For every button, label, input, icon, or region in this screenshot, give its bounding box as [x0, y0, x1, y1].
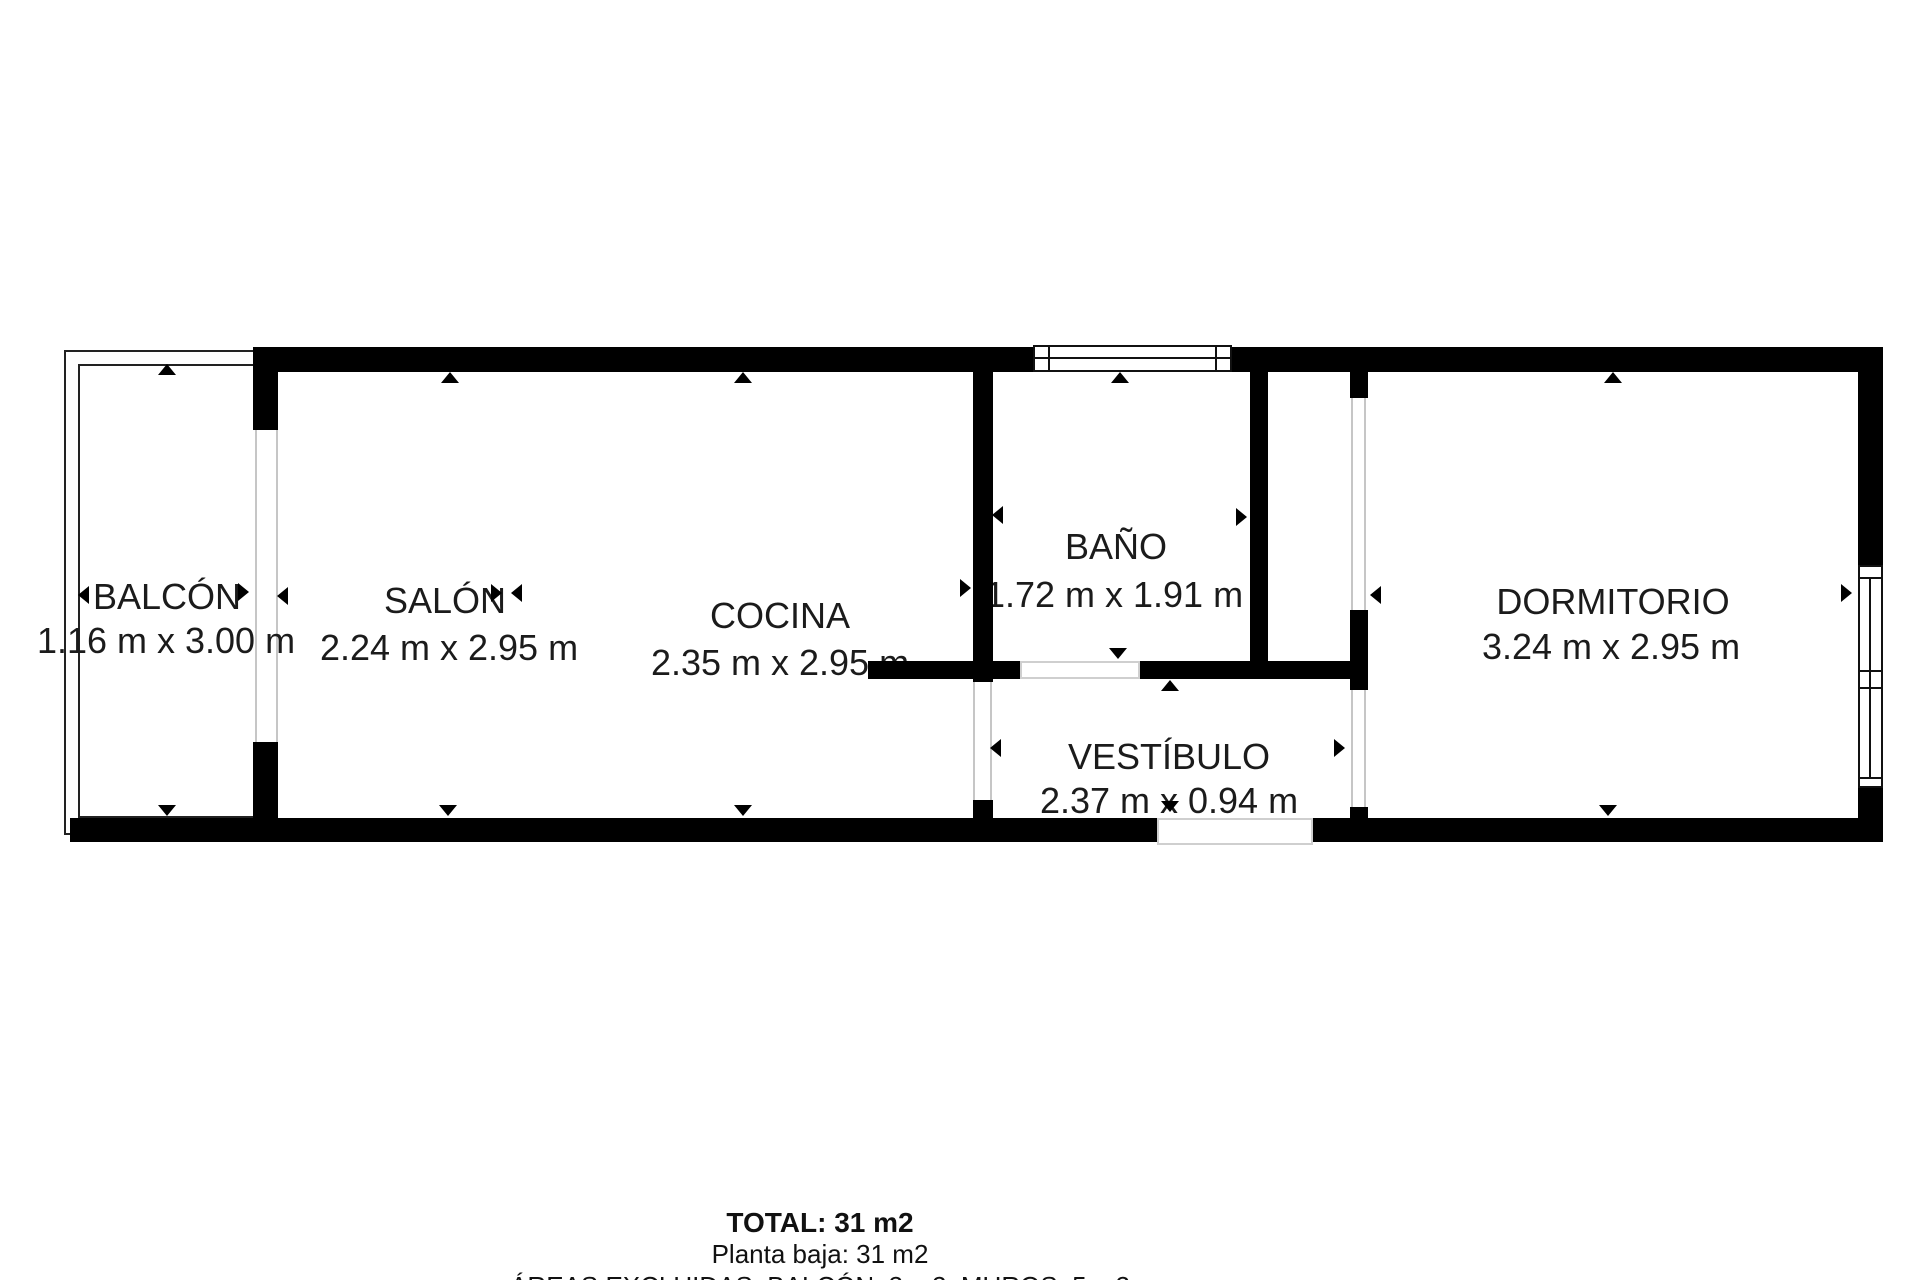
dim-arrow-left-icon: [277, 587, 288, 605]
wall-balcony-salon-bottom-stub: [253, 742, 278, 818]
wall-dormitorio-left-mid: [1350, 610, 1368, 690]
room-dimensions-cocina: 2.35 m x 2.95 m: [430, 639, 1130, 687]
wall-below-bano-right: [1140, 661, 1353, 679]
room-label-bano: BAÑO: [766, 523, 1466, 571]
dim-arrow-down-icon: [158, 805, 176, 816]
dim-arrow-left-icon: [1370, 586, 1381, 604]
dim-arrow-up-icon: [441, 372, 459, 383]
dormitorio-window-mullion: [1869, 577, 1871, 777]
summary-total: TOTAL: 31 m2: [420, 1208, 1220, 1238]
wall-cocina-vestibulo-stub: [973, 800, 993, 818]
wall-right-upper: [1858, 347, 1883, 565]
wall-bottom-left: [70, 818, 1157, 842]
dim-arrow-down-icon: [1599, 805, 1617, 816]
dormitorio-window-bar: [1860, 687, 1881, 689]
wall-dormitorio-left-top-stub: [1350, 372, 1368, 398]
dim-arrow-right-icon: [238, 583, 249, 601]
dim-arrow-down-icon: [734, 805, 752, 816]
dormitorio-window-bar: [1860, 670, 1881, 672]
dim-arrow-up-icon: [734, 372, 752, 383]
wall-below-bano-left: [868, 661, 1020, 679]
summary-excluded-areas: ÁREAS EXCLUIDAS: BALCÓN: 3 m2, MUROS: 5 …: [420, 1271, 1220, 1280]
dim-arrow-up-icon: [158, 364, 176, 375]
dim-arrow-up-icon: [1161, 680, 1179, 691]
dim-arrow-left-icon: [992, 506, 1003, 524]
dim-arrow-right-icon: [1334, 739, 1345, 757]
dim-arrow-down-icon: [439, 805, 457, 816]
dim-arrow-right-icon: [491, 584, 502, 602]
dim-arrow-right-icon: [1236, 508, 1247, 526]
wall-right-lower: [1858, 788, 1883, 842]
dim-arrow-right-icon: [960, 579, 971, 597]
wall-top-left: [253, 347, 1033, 372]
dim-arrow-right-icon: [1841, 584, 1852, 602]
wall-top-right: [1232, 347, 1883, 372]
room-label-vestibulo: VESTÍBULO: [819, 733, 1519, 781]
dim-arrow-left-icon: [78, 586, 89, 604]
dormitorio-window-bar: [1860, 577, 1881, 579]
dim-arrow-down-icon: [1161, 801, 1179, 812]
bano-window-cap: [1215, 347, 1217, 370]
wall-balcony-salon-top-stub: [253, 347, 278, 430]
wall-bano-right: [1250, 372, 1268, 678]
wall-bottom-right: [1313, 818, 1883, 842]
bano-window-mullion: [1035, 357, 1230, 359]
bano-window-cap: [1048, 347, 1050, 370]
dim-arrow-left-icon: [990, 739, 1001, 757]
dim-arrow-up-icon: [1111, 372, 1129, 383]
dim-arrow-up-icon: [1604, 372, 1622, 383]
floor-plan: BALCÓN 1.16 m x 3.00 m SALÓN 2.24 m x 2.…: [0, 0, 1920, 1280]
dim-arrow-left-icon: [511, 584, 522, 602]
summary-floor: Planta baja: 31 m2: [420, 1239, 1220, 1269]
wall-dormitorio-left-bottom-stub: [1350, 807, 1368, 818]
dormitorio-window-bar: [1860, 777, 1881, 779]
wall-cocina-bano: [973, 372, 993, 682]
dim-arrow-down-icon: [1109, 648, 1127, 659]
